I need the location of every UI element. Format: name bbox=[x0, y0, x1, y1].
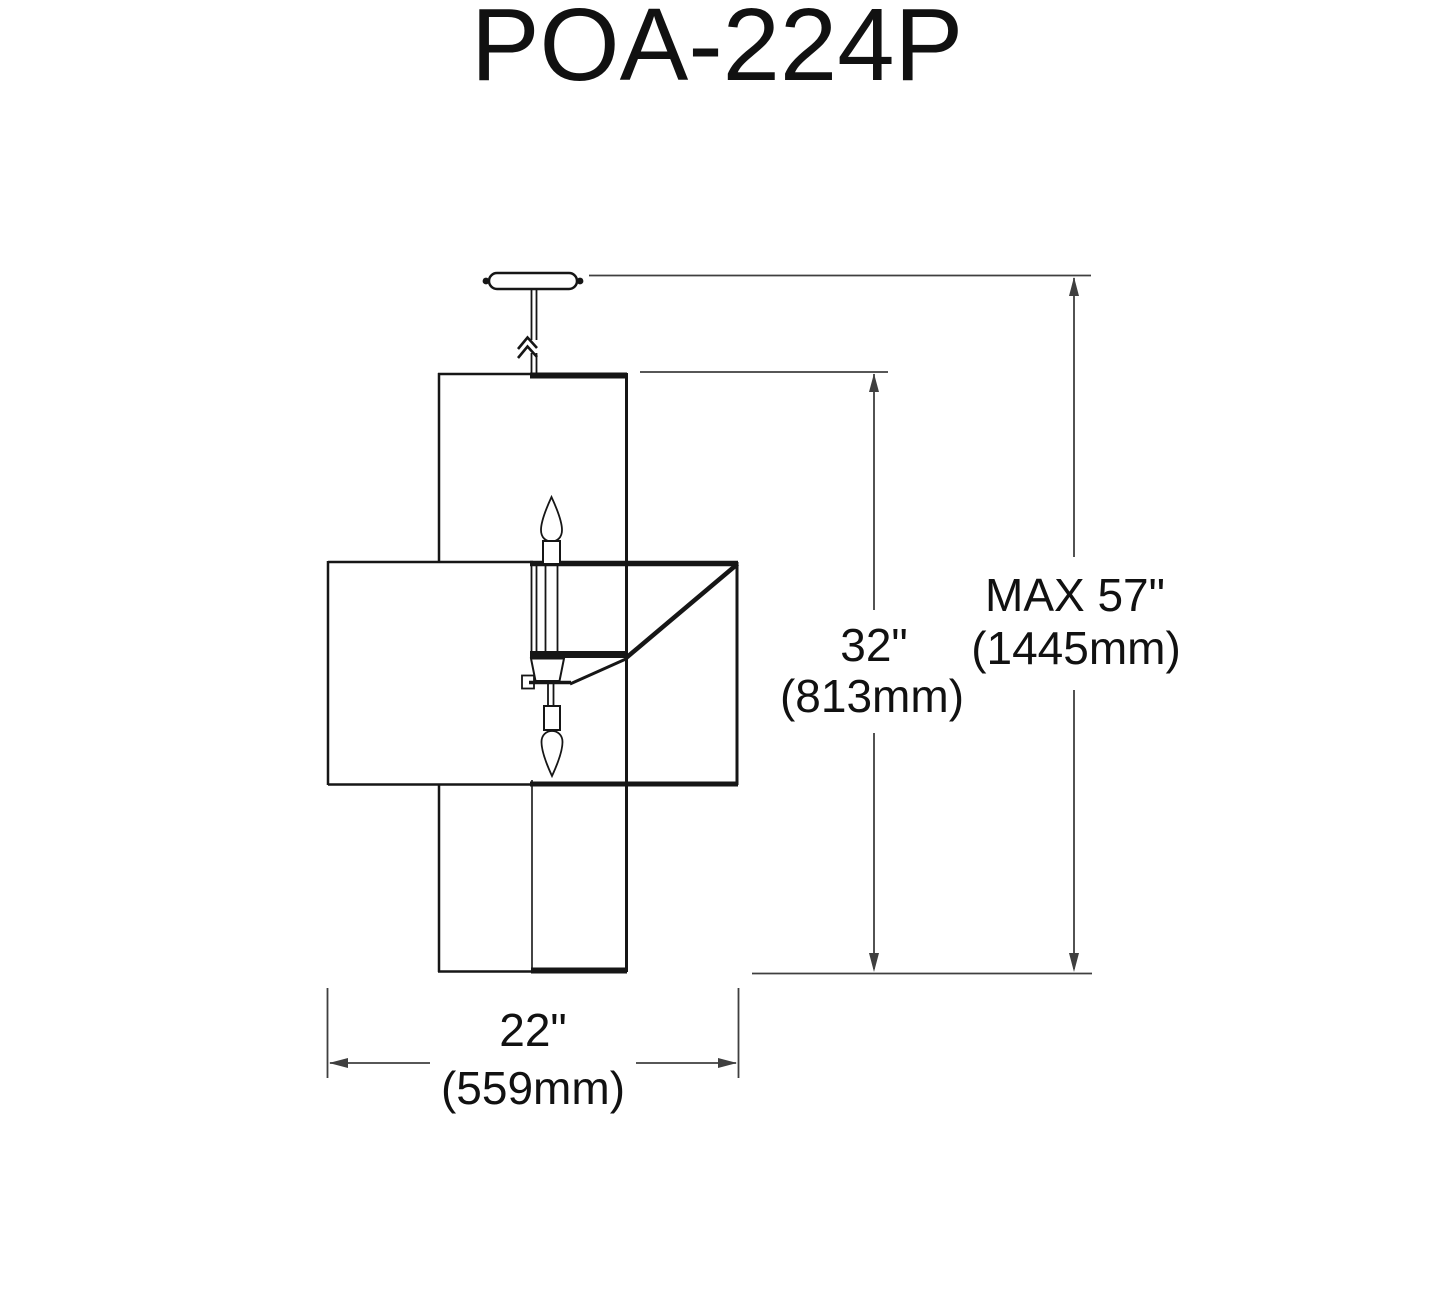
ceiling-canopy bbox=[483, 273, 584, 289]
height-arrow-up-icon bbox=[869, 374, 879, 393]
dimension-shade-height: 32" (813mm) bbox=[640, 372, 964, 972]
width-arrow-left-icon bbox=[329, 1058, 348, 1068]
pendant-fixture bbox=[328, 273, 738, 972]
rod-break-icon bbox=[518, 338, 537, 359]
center-cluster bbox=[522, 497, 627, 776]
shade-height-mm-label: (813mm) bbox=[780, 670, 964, 722]
width-arrow-right-icon bbox=[718, 1058, 737, 1068]
overall-height-inches-label: MAX 57" bbox=[985, 569, 1165, 621]
hshade-corner-arm-diagonal bbox=[626, 564, 738, 658]
technical-drawing: POA-224P bbox=[0, 0, 1445, 1313]
upper-socket bbox=[543, 541, 560, 564]
overall-arrow-down-icon bbox=[1069, 953, 1079, 972]
hshade-inner-diagonal bbox=[570, 659, 627, 685]
page-title: POA-224P bbox=[471, 0, 963, 102]
shade-height-inches-label: 32" bbox=[840, 619, 908, 671]
candle-cup bbox=[531, 659, 564, 682]
shade-width-mm-label: (559mm) bbox=[441, 1062, 625, 1114]
canopy-screw-right-icon bbox=[577, 278, 584, 285]
drawing-page: POA-224P bbox=[0, 0, 1445, 1313]
overall-height-mm-label: (1445mm) bbox=[971, 622, 1181, 674]
height-arrow-down-icon bbox=[869, 953, 879, 972]
canopy-screw-left-icon bbox=[483, 278, 490, 285]
lower-socket bbox=[544, 706, 560, 730]
overall-arrow-up-icon bbox=[1069, 277, 1079, 296]
dimension-shade-width: 22" (559mm) bbox=[328, 988, 739, 1114]
canopy-plate bbox=[489, 273, 577, 289]
upper-bulb-icon bbox=[541, 497, 562, 542]
lower-bulb-icon bbox=[542, 731, 563, 776]
shade-width-inches-label: 22" bbox=[499, 1004, 567, 1056]
break-chevron-bottom bbox=[518, 347, 537, 359]
